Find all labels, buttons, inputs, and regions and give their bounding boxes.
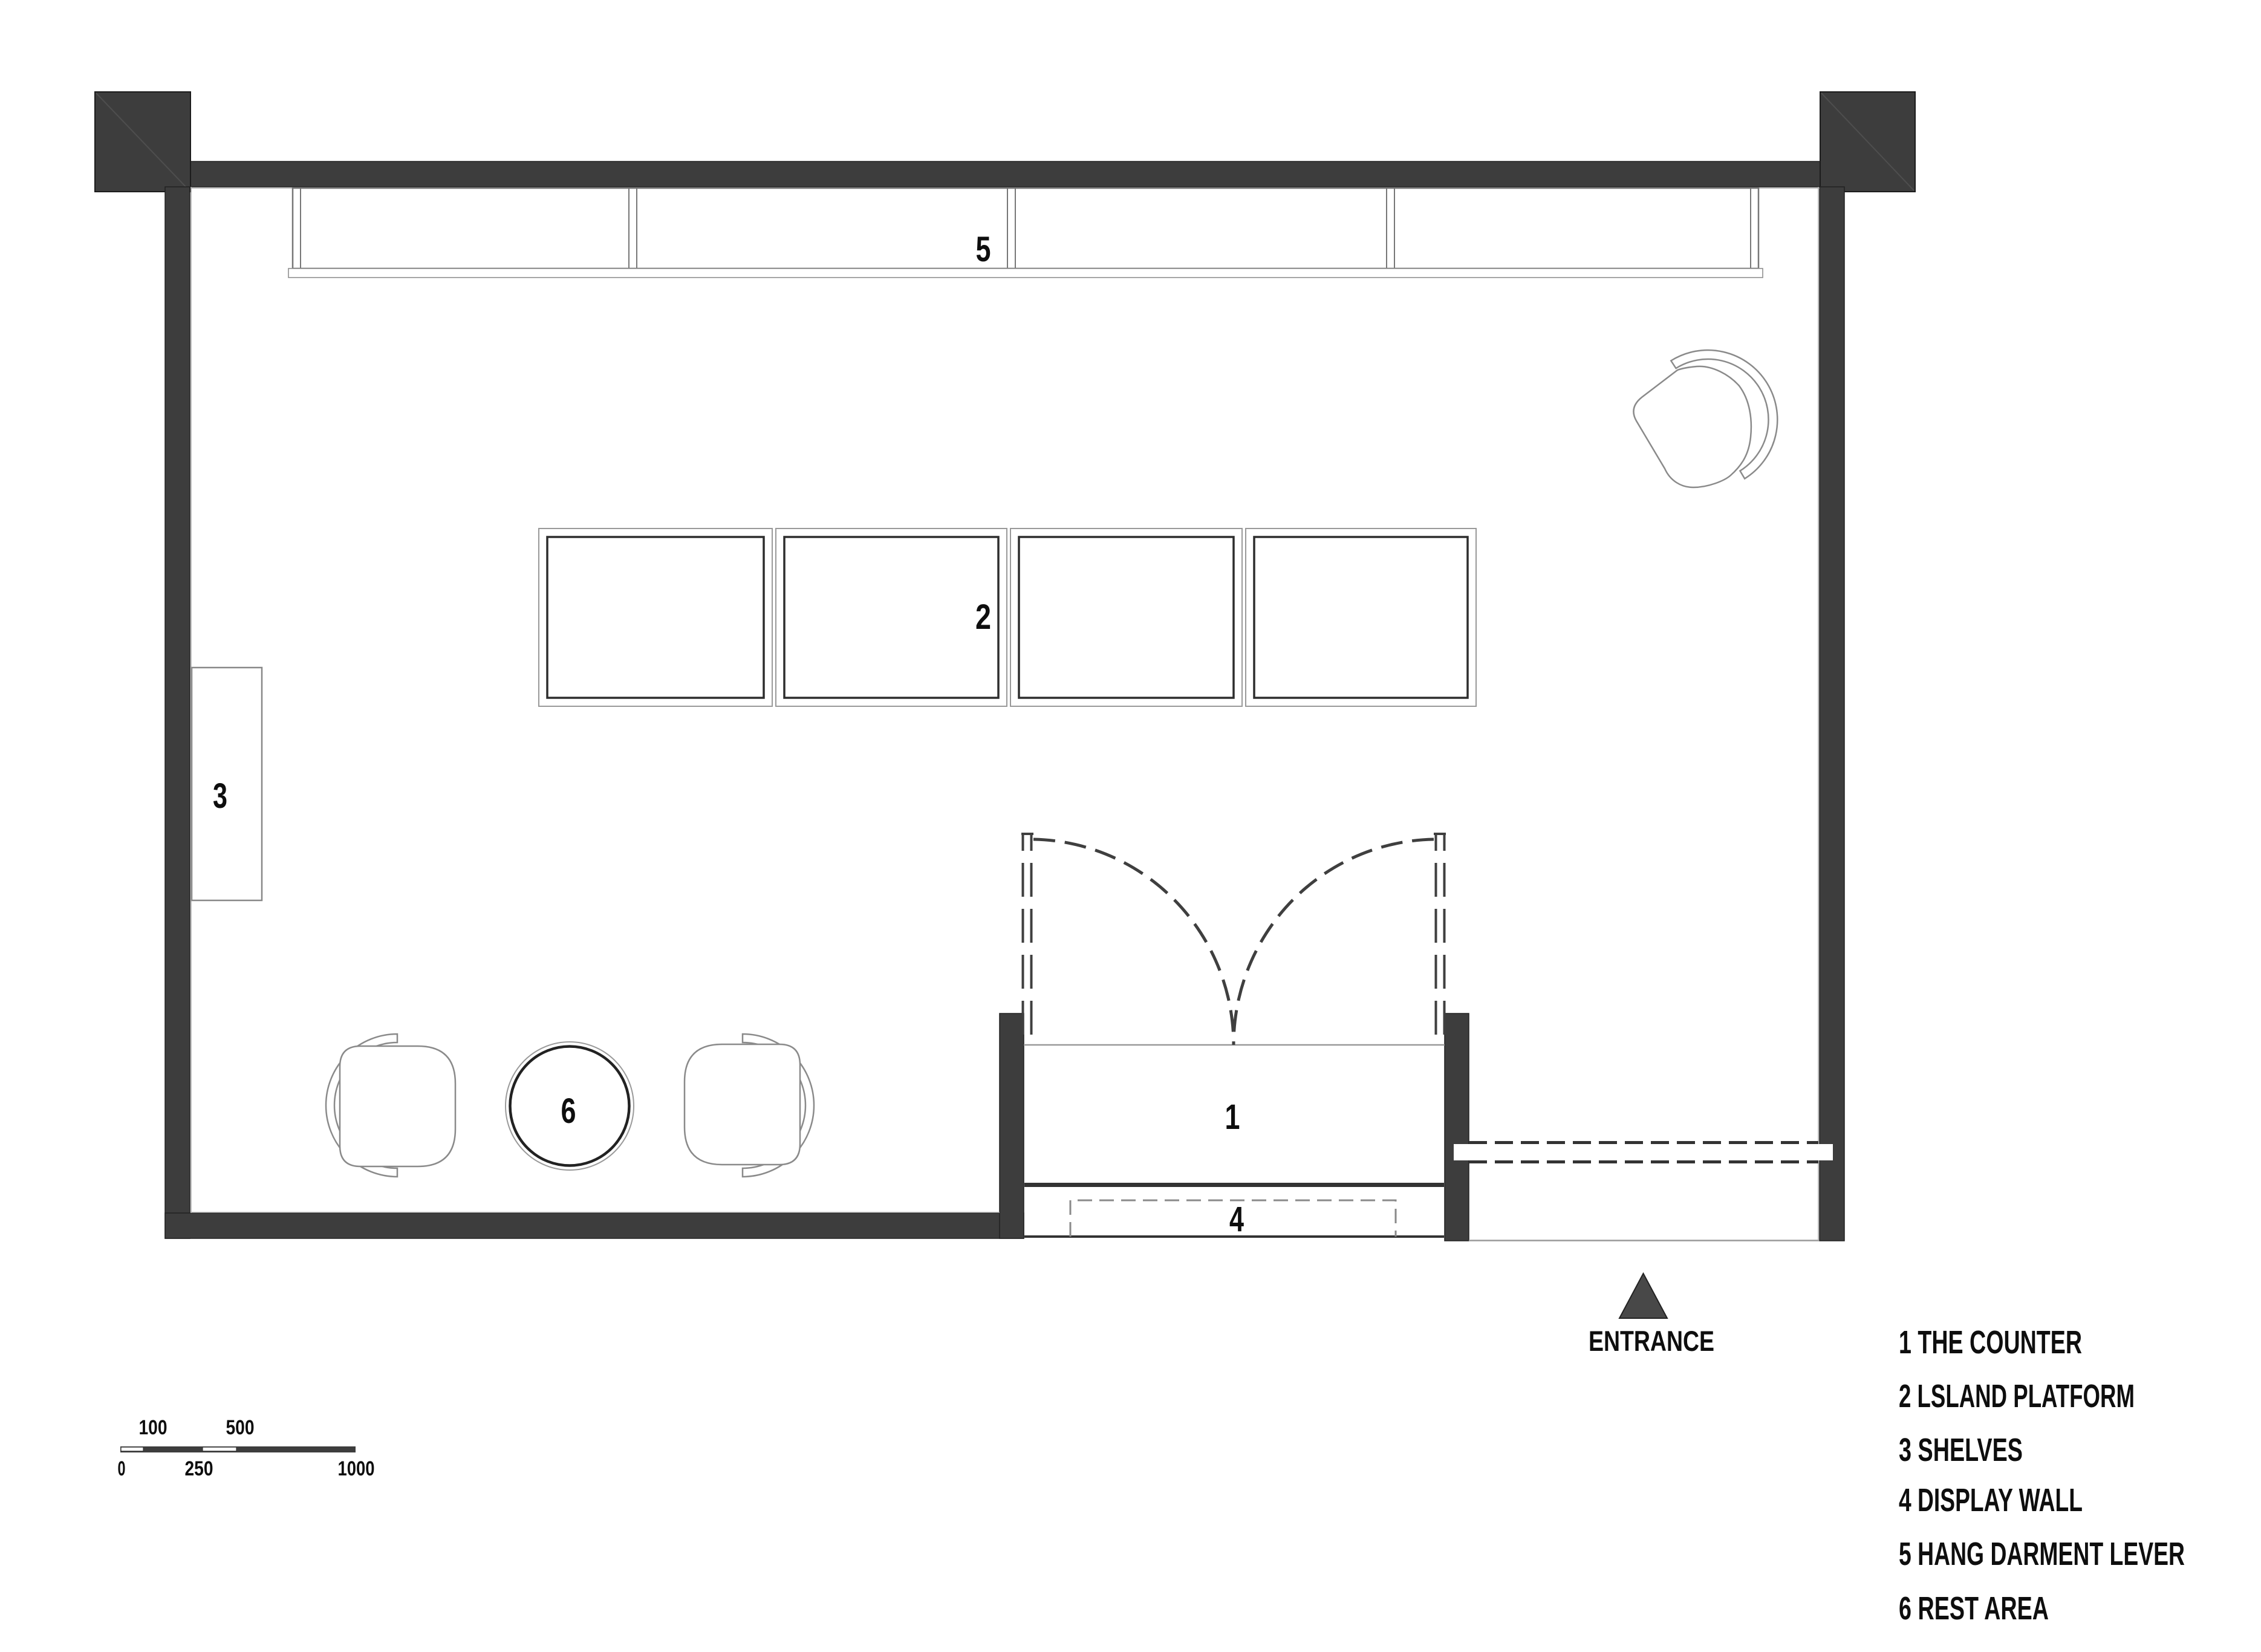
svg-text:1: 1: [1225, 1098, 1240, 1137]
svg-text:100: 100: [139, 1416, 168, 1439]
svg-text:5 HANG DARMENT LEVER: 5 HANG DARMENT LEVER: [1899, 1536, 2185, 1572]
svg-text:3: 3: [213, 776, 227, 816]
svg-text:3 SHELVES: 3 SHELVES: [1899, 1432, 2023, 1468]
svg-text:2 LSLAND PLATFORM: 2 LSLAND PLATFORM: [1899, 1378, 2135, 1414]
svg-text:6: 6: [561, 1091, 576, 1131]
svg-text:4: 4: [1229, 1200, 1244, 1239]
svg-text:1 THE COUNTER: 1 THE COUNTER: [1899, 1324, 2082, 1361]
svg-text:1000: 1000: [338, 1457, 375, 1480]
svg-text:4 DISPLAY WALL: 4 DISPLAY WALL: [1899, 1482, 2083, 1518]
svg-text:250: 250: [185, 1457, 213, 1480]
svg-text:500: 500: [226, 1416, 255, 1439]
svg-text:6 REST AREA: 6 REST AREA: [1899, 1590, 2049, 1627]
svg-text:5: 5: [976, 230, 991, 269]
svg-text:2: 2: [975, 597, 991, 637]
svg-text:0: 0: [118, 1457, 126, 1480]
svg-text:ENTRANCE: ENTRANCE: [1589, 1325, 1714, 1357]
